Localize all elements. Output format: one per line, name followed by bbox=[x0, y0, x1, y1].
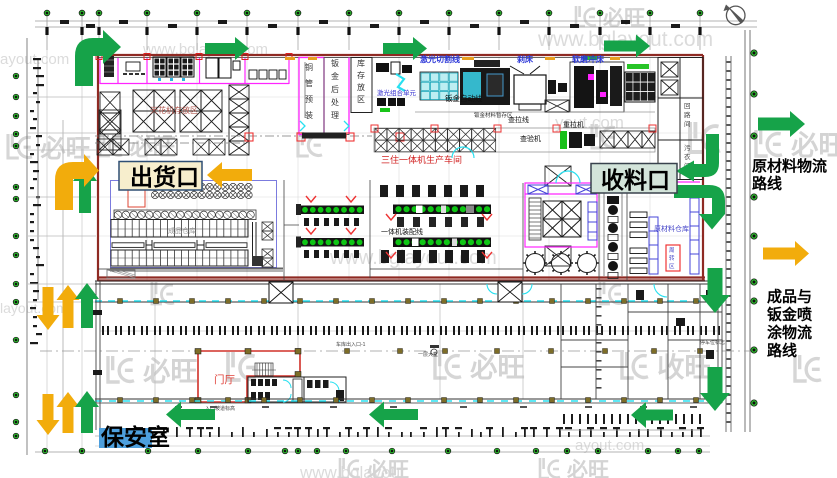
svg-text:管: 管 bbox=[305, 78, 313, 88]
svg-text:查验机: 查验机 bbox=[520, 134, 541, 143]
svg-text:必旺: 必旺 bbox=[40, 135, 90, 163]
svg-text:处: 处 bbox=[331, 97, 339, 107]
svg-text:一体机装配线: 一体机装配线 bbox=[381, 227, 423, 236]
svg-text:铜: 铜 bbox=[305, 62, 313, 72]
svg-text:间: 间 bbox=[684, 120, 691, 128]
svg-text:钣金喷: 钣金喷 bbox=[767, 306, 812, 324]
svg-text:理: 理 bbox=[331, 111, 339, 120]
svg-text:必旺: 必旺 bbox=[791, 130, 837, 161]
svg-text:预: 预 bbox=[305, 94, 313, 104]
svg-text:刹床: 刹床 bbox=[517, 54, 534, 64]
svg-text:必旺: 必旺 bbox=[567, 458, 609, 478]
svg-text:成品与: 成品与 bbox=[767, 288, 812, 306]
svg-text:路线: 路线 bbox=[752, 175, 782, 193]
svg-text:钣金自动线: 钣金自动线 bbox=[445, 93, 483, 103]
svg-text:原材料仓库: 原材料仓库 bbox=[654, 224, 689, 233]
svg-text:后: 后 bbox=[331, 84, 339, 94]
svg-text:软磨冲床: 软磨冲床 bbox=[572, 54, 605, 64]
svg-text:转: 转 bbox=[669, 254, 675, 262]
svg-text:路: 路 bbox=[684, 110, 691, 119]
svg-text:门厅: 门厅 bbox=[214, 373, 235, 386]
svg-text:污: 污 bbox=[684, 144, 691, 152]
svg-text:必旺: 必旺 bbox=[143, 356, 198, 387]
svg-text:衣: 衣 bbox=[684, 152, 691, 161]
svg-text:车库出入口-1: 车库出入口-1 bbox=[336, 341, 366, 348]
svg-text:收旺: 收旺 bbox=[657, 352, 712, 383]
svg-text:金: 金 bbox=[331, 71, 339, 81]
svg-text:成品仓库: 成品仓库 bbox=[168, 226, 196, 235]
svg-text:查拉线: 查拉线 bbox=[508, 115, 529, 124]
svg-text:钣: 钣 bbox=[331, 58, 339, 68]
svg-text:必旺: 必旺 bbox=[367, 458, 409, 478]
svg-text:三住一体机生产车间: 三住一体机生产车间 bbox=[381, 154, 462, 165]
svg-text:保安室: 保安室 bbox=[100, 424, 170, 450]
svg-text:一层大堂: 一层大堂 bbox=[418, 351, 438, 358]
svg-text:放: 放 bbox=[357, 82, 365, 92]
svg-text:出货口: 出货口 bbox=[130, 164, 199, 190]
svg-text:收料口: 收料口 bbox=[601, 167, 670, 193]
svg-text:天花机存放区: 天花机存放区 bbox=[150, 105, 198, 115]
svg-text:涂物流: 涂物流 bbox=[767, 324, 812, 342]
svg-text:路线: 路线 bbox=[767, 342, 797, 360]
svg-text:原材料物流: 原材料物流 bbox=[752, 157, 827, 175]
svg-text:周: 周 bbox=[669, 247, 675, 254]
svg-text:激光切割线: 激光切割线 bbox=[420, 54, 460, 64]
svg-text:装: 装 bbox=[305, 110, 313, 120]
svg-text:重拉机: 重拉机 bbox=[563, 120, 584, 129]
svg-text:回: 回 bbox=[684, 102, 691, 110]
svg-text:必旺: 必旺 bbox=[470, 352, 525, 383]
svg-text:区: 区 bbox=[357, 95, 365, 104]
svg-text:ayout.com: ayout.com bbox=[575, 437, 644, 454]
svg-text:必旺: 必旺 bbox=[603, 6, 645, 30]
svg-text:区: 区 bbox=[669, 263, 675, 270]
svg-text:激光组合单元: 激光组合单元 bbox=[377, 88, 417, 97]
svg-text:库: 库 bbox=[357, 58, 365, 68]
svg-text:存: 存 bbox=[357, 70, 365, 80]
